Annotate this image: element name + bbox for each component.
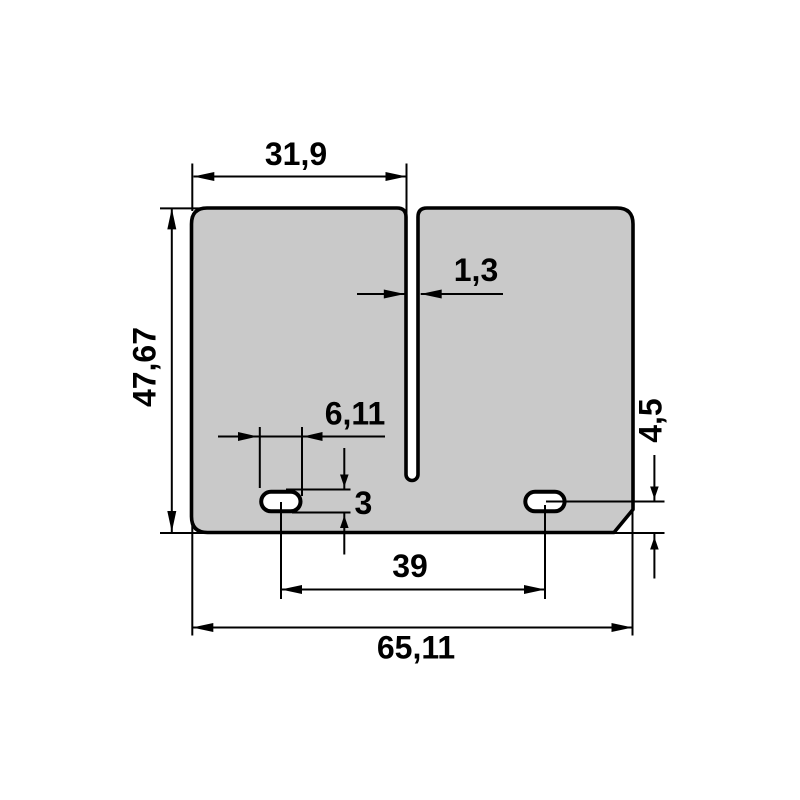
svg-text:65,11: 65,11	[377, 630, 455, 666]
svg-text:3: 3	[355, 485, 373, 521]
svg-text:47,67: 47,67	[127, 327, 163, 407]
svg-text:4,5: 4,5	[633, 398, 669, 442]
svg-text:31,9: 31,9	[265, 136, 327, 172]
svg-text:6,11: 6,11	[325, 396, 386, 432]
svg-text:1,3: 1,3	[454, 252, 498, 288]
svg-text:39: 39	[392, 548, 428, 584]
